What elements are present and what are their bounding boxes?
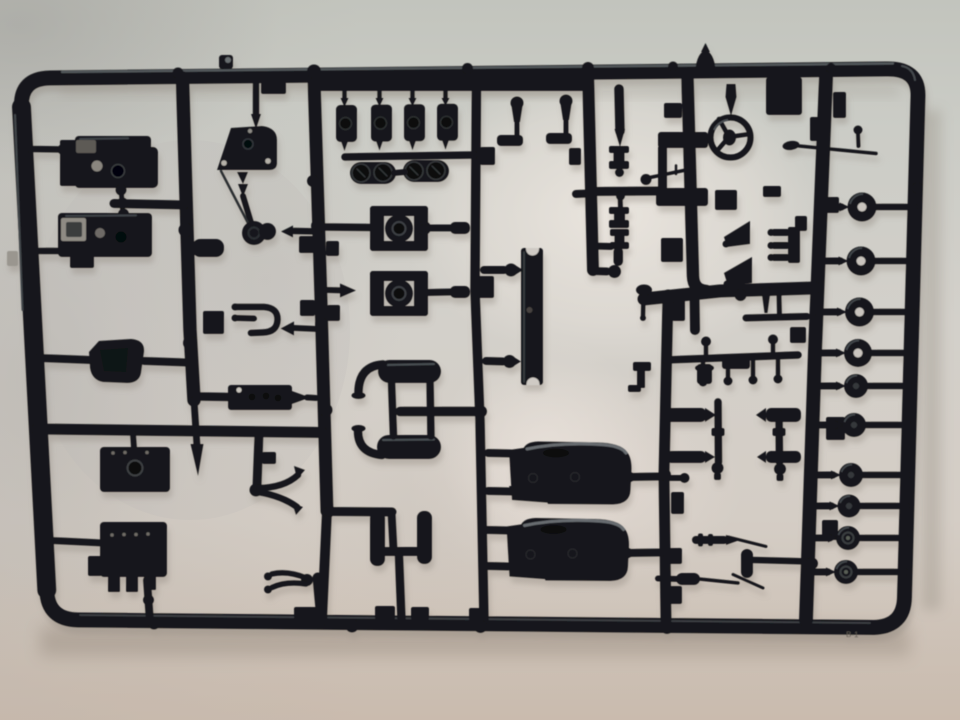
svg-text:B·1: B·1 xyxy=(846,630,859,639)
